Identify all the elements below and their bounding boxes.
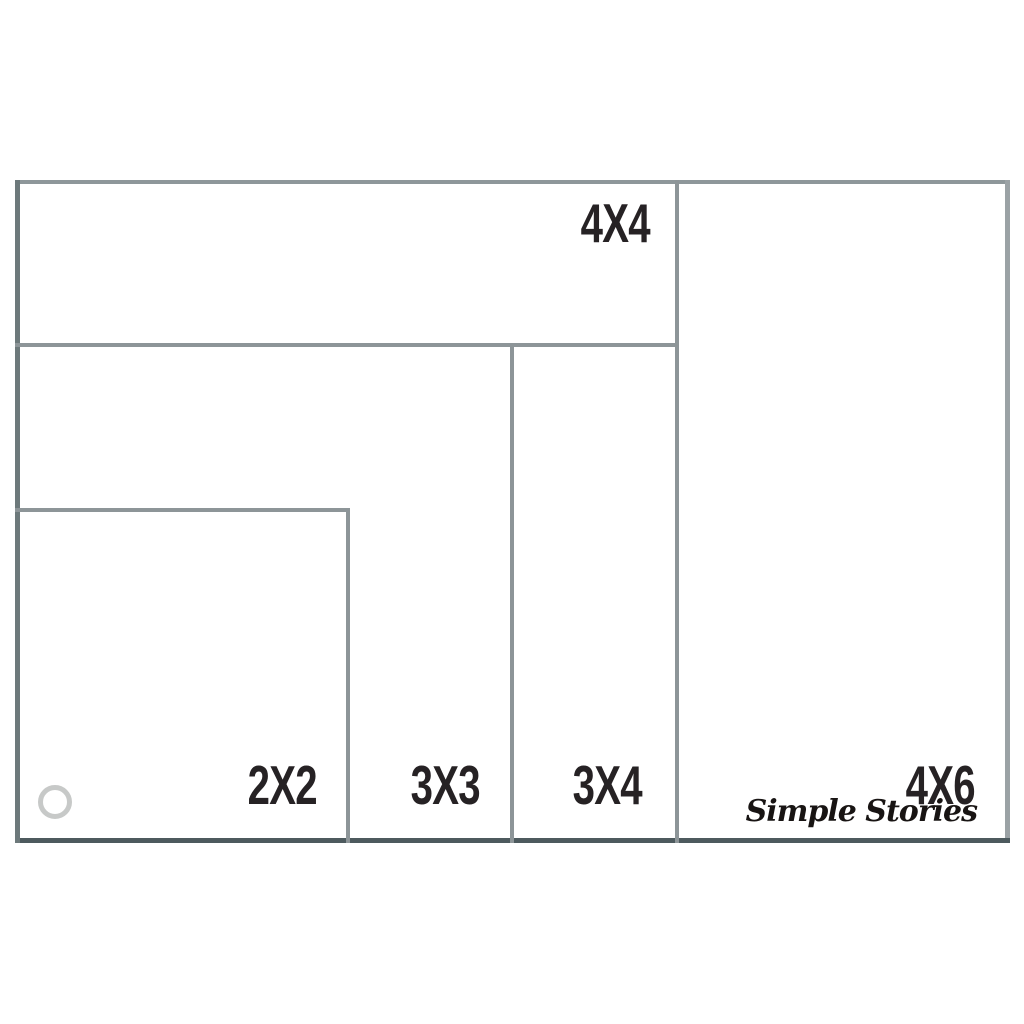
brand-logo: Simple Stories: [746, 796, 977, 828]
rect-3x4-top-edge: [15, 343, 679, 347]
rect-2x2-right-edge: [346, 508, 350, 843]
size-label-3x4: 3X4: [573, 758, 642, 813]
rect-4x4-right-edge: [675, 180, 679, 843]
rect-4x6-top-edge: [15, 180, 1010, 184]
product-size-chart: 4X4 2X2 3X3 3X4 4X6 Simple Stories: [0, 0, 1024, 1024]
size-label-4x4: 4X4: [581, 196, 650, 251]
size-comparison-diagram: 4X4 2X2 3X3 3X4 4X6 Simple Stories: [15, 180, 1010, 843]
rect-3x3-right-edge: [510, 343, 514, 843]
rect-4x6-right-edge: [1005, 180, 1010, 843]
rect-2x2-top-edge: [15, 508, 350, 512]
size-label-3x3: 3X3: [411, 758, 480, 813]
size-label-2x2: 2X2: [248, 758, 317, 813]
binder-hole-icon: [38, 785, 72, 819]
